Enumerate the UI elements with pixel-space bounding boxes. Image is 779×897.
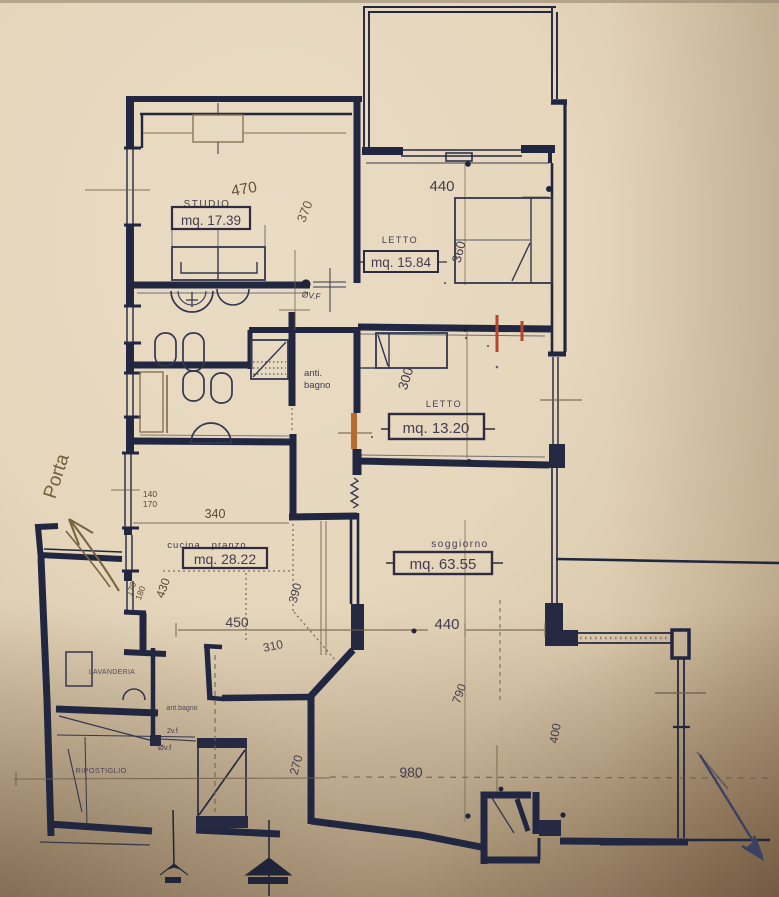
svg-text:RIPOSTIGLIO: RIPOSTIGLIO <box>75 766 126 775</box>
svg-text:mq. 63.55: mq. 63.55 <box>410 556 477 573</box>
svg-text:450: 450 <box>225 614 249 630</box>
svg-text:340: 340 <box>205 507 226 521</box>
svg-text:bagno: bagno <box>304 380 330 391</box>
svg-text:mq. 13.20: mq. 13.20 <box>403 420 470 437</box>
svg-text:Øv.f: Øv.f <box>158 743 172 752</box>
svg-text:LETTO: LETTO <box>382 235 418 245</box>
svg-text:anti.: anti. <box>304 368 322 379</box>
svg-text:2v.f: 2v.f <box>167 728 178 735</box>
svg-text:140: 140 <box>143 489 157 499</box>
svg-text:mq. 15.84: mq. 15.84 <box>371 255 432 270</box>
svg-text:mq. 28.22: mq. 28.22 <box>194 551 256 567</box>
svg-text:980: 980 <box>399 764 423 780</box>
svg-text:soggiorno: soggiorno <box>431 539 488 550</box>
svg-text:STUDIO: STUDIO <box>184 199 231 210</box>
svg-text:440: 440 <box>434 616 459 633</box>
svg-text:LAVANDERIA: LAVANDERIA <box>89 669 135 676</box>
svg-text:170: 170 <box>143 499 157 509</box>
svg-text:ant.bagno: ant.bagno <box>166 705 197 712</box>
svg-text:cucina , pranzo: cucina , pranzo <box>167 540 246 551</box>
svg-text:mq. 17.39: mq. 17.39 <box>181 213 241 228</box>
svg-text:LETTO: LETTO <box>426 399 462 409</box>
svg-text:440: 440 <box>429 178 454 195</box>
